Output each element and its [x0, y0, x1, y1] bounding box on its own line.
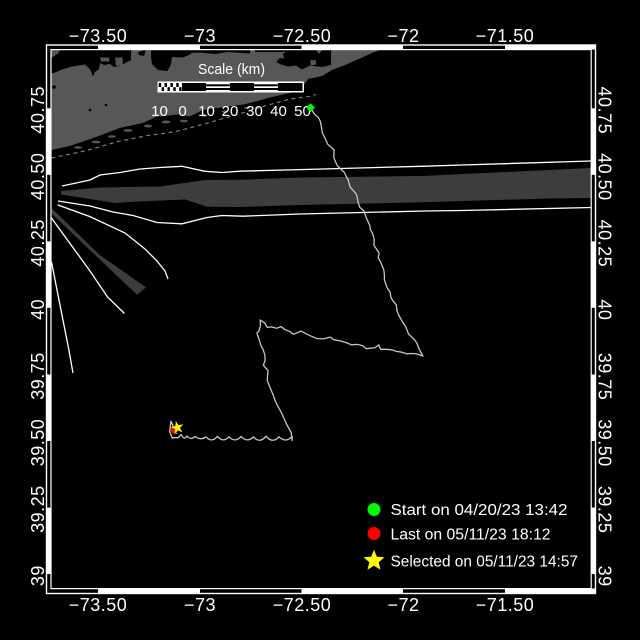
- svg-text:39.75: 39.75: [595, 353, 615, 401]
- svg-text:39.75: 39.75: [28, 352, 48, 400]
- svg-text:Selected on 05/11/23 14:57: Selected on 05/11/23 14:57: [391, 553, 579, 570]
- svg-text:−72.50: −72.50: [273, 595, 332, 615]
- svg-text:20: 20: [222, 103, 239, 120]
- svg-text:40: 40: [28, 299, 48, 320]
- svg-text:40.50: 40.50: [28, 153, 48, 201]
- svg-text:Start on 04/20/23 13:42: Start on 04/20/23 13:42: [391, 502, 568, 519]
- svg-text:Last on 05/11/23 18:12: Last on 05/11/23 18:12: [391, 526, 551, 543]
- svg-text:Scale (km): Scale (km): [198, 62, 265, 78]
- svg-text:40: 40: [270, 103, 287, 120]
- svg-text:40.50: 40.50: [595, 153, 615, 201]
- svg-text:10: 10: [151, 103, 168, 120]
- svg-text:−72: −72: [387, 26, 419, 46]
- svg-text:40: 40: [595, 299, 615, 320]
- svg-text:39.50: 39.50: [28, 419, 48, 467]
- svg-text:−72: −72: [387, 595, 419, 615]
- svg-text:40.25: 40.25: [595, 220, 615, 268]
- svg-text:39.25: 39.25: [28, 485, 48, 533]
- svg-text:39.50: 39.50: [595, 419, 615, 467]
- svg-text:−73: −73: [184, 26, 216, 46]
- svg-text:40.25: 40.25: [28, 219, 48, 267]
- svg-text:40.75: 40.75: [28, 86, 48, 134]
- svg-text:−73: −73: [184, 595, 216, 615]
- svg-text:39: 39: [28, 565, 48, 586]
- svg-text:39.25: 39.25: [595, 486, 615, 534]
- svg-text:0: 0: [178, 103, 186, 120]
- svg-text:40.75: 40.75: [595, 87, 615, 135]
- svg-text:−72.50: −72.50: [273, 26, 332, 46]
- svg-text:39: 39: [595, 566, 615, 587]
- svg-text:30: 30: [246, 103, 263, 120]
- svg-text:−71.50: −71.50: [476, 26, 535, 46]
- svg-text:−71.50: −71.50: [476, 595, 535, 615]
- svg-text:−73.50: −73.50: [69, 595, 128, 615]
- svg-text:−73.50: −73.50: [69, 26, 128, 46]
- svg-text:10: 10: [198, 103, 215, 120]
